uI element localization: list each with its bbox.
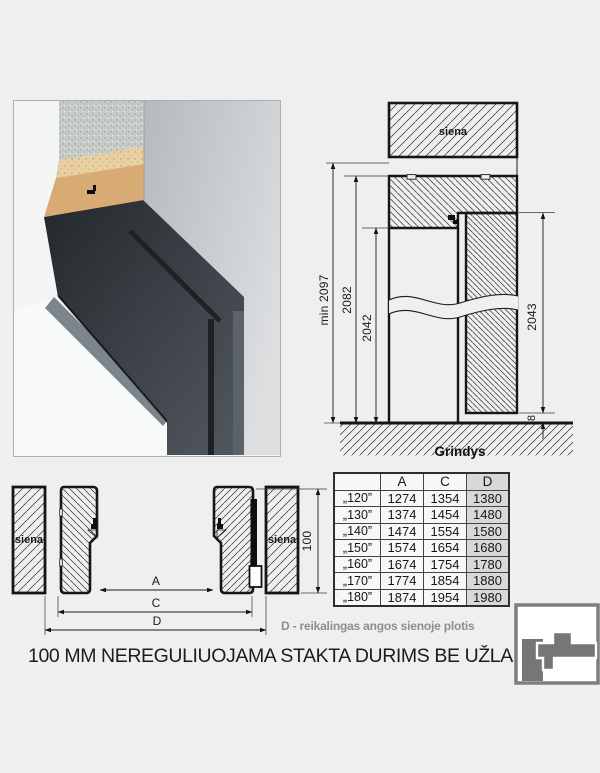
frame-left-seal [91,524,97,529]
table-row: „180” 1874 1954 1980 [334,589,509,606]
d-cell: 1380 [467,490,510,507]
a-cell: 1874 [381,589,424,606]
table-row: „120” 1274 1354 1380 [334,490,509,507]
c-cell: 1854 [424,573,467,590]
size-cell: „130” [334,507,381,524]
size-cell: „140” [334,523,381,540]
frame-right-seal [217,524,223,529]
col-header-d: D [467,473,510,490]
dim-label-floor-gap: 8 [526,415,538,421]
c-cell: 1554 [424,523,467,540]
a-cell: 1274 [381,490,424,507]
size-cell: „150” [334,540,381,557]
col-header-c: C [424,473,467,490]
dim-label-d: D [153,614,162,628]
dim-label-c: C [152,596,161,610]
plan-wall-left-label: siena [15,534,44,546]
table-header-row: A C D [334,473,509,490]
d-cell: 1980 [467,589,510,606]
header-notch-left [407,175,416,180]
frame-groove-vertical [208,319,214,455]
col-header-size [334,473,381,490]
door-leaf-edge [251,499,258,566]
frame-corner-photo [13,100,281,457]
d-cell: 1680 [467,540,510,557]
table-row: „140” 1474 1554 1580 [334,523,509,540]
plan-frame-left [61,487,97,593]
floor-label: Grindys [434,444,485,459]
frame-left-notch-2 [60,559,63,566]
col-header-a: A [381,473,424,490]
size-cell: „170” [334,573,381,590]
d-dimension-note: D - reikalingas angos sienoje plotis [281,619,475,633]
frame-left-notch-1 [60,509,63,516]
elevation-drawing: siena Grindys min 2097 2082 2042 2043 [280,95,600,470]
table-row: „130” 1374 1454 1480 [334,507,509,524]
lintel-wall-label: siena [439,126,468,138]
frame-edge-lip [233,311,244,455]
a-cell: 1474 [381,523,424,540]
d-cell: 1480 [467,507,510,524]
a-cell: 1674 [381,556,424,573]
table-row: „150” 1574 1654 1680 [334,540,509,557]
company-logo [514,603,600,685]
frame-left-seal-2 [93,518,96,524]
plan-frame-right [214,487,253,593]
c-cell: 1654 [424,540,467,557]
frame-right-seal-2 [218,518,221,524]
d-cell: 1880 [467,573,510,590]
size-cell: „160” [334,556,381,573]
page-background: siena Grindys min 2097 2082 2042 2043 [0,0,600,773]
header-notch-right [481,175,490,180]
lock-plate [250,566,262,587]
dim-label-frame-height: 2082 [340,286,354,314]
plan-wall-right-label: siena [268,534,297,546]
a-cell: 1774 [381,573,424,590]
d-cell: 1580 [467,523,510,540]
size-cell: „180” [334,589,381,606]
dim-label-leaf-height: 2043 [525,303,539,331]
header-seal [448,215,455,220]
a-cell: 1574 [381,540,424,557]
dim-label-a: A [152,574,160,588]
size-cell: „120” [334,490,381,507]
frame-corner-render [14,101,280,455]
dim-label-opening-height: 2042 [360,314,374,342]
c-cell: 1354 [424,490,467,507]
c-cell: 1454 [424,507,467,524]
table-row: „160” 1674 1754 1780 [334,556,509,573]
d-cell: 1780 [467,556,510,573]
header-seal-2 [453,220,458,224]
dim-label-depth: 100 [300,531,314,552]
product-caption: 100 MM NEREGULIUOJAMA STAKTA DURIMS BE U… [28,645,559,668]
table-row: „170” 1774 1854 1880 [334,573,509,590]
seal-detail-2 [93,185,96,191]
a-cell: 1374 [381,507,424,524]
dimensions-table: A C D „120” 1274 1354 1380 „130” 1374 14… [333,472,510,607]
c-cell: 1754 [424,556,467,573]
c-cell: 1954 [424,589,467,606]
dim-label-min-height: min 2097 [317,274,331,325]
